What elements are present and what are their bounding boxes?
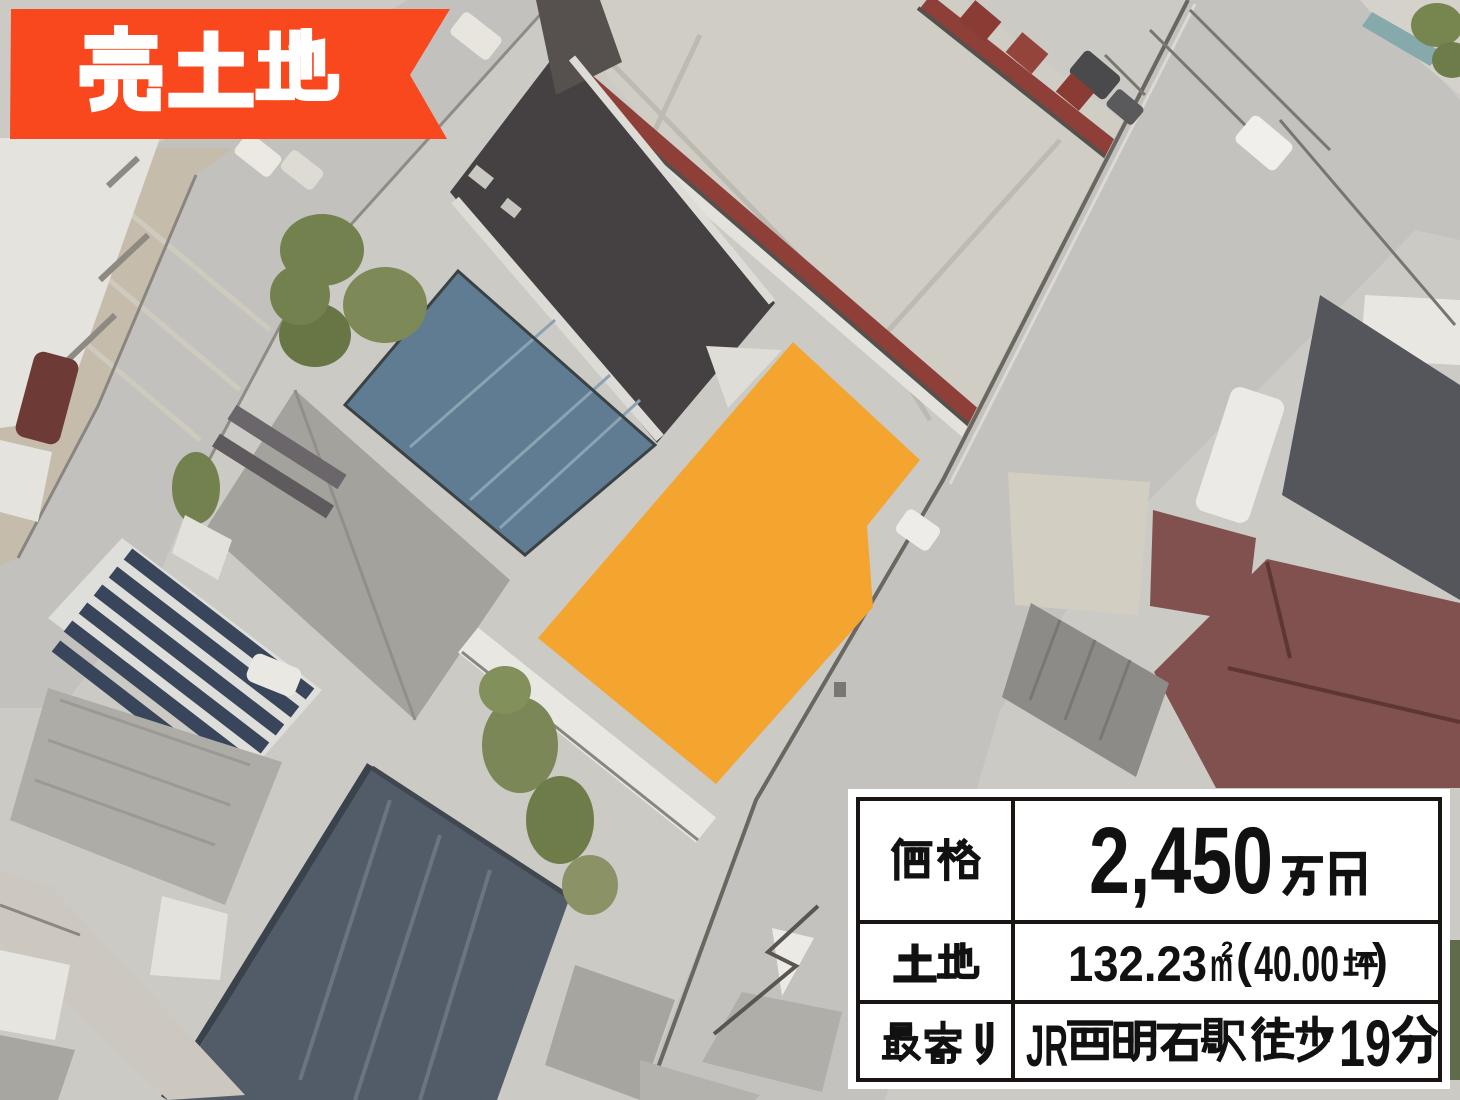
svg-text:): ) xyxy=(1372,935,1388,988)
svg-text:19: 19 xyxy=(1339,1006,1391,1080)
svg-text:40.00: 40.00 xyxy=(1254,936,1339,992)
svg-text:2,450: 2,450 xyxy=(1089,808,1273,914)
svg-text:(: ( xyxy=(1236,935,1252,988)
svg-text:JR: JR xyxy=(1026,1014,1068,1079)
svg-text:132.23: 132.23 xyxy=(1068,936,1207,992)
svg-text:2: 2 xyxy=(1221,937,1233,962)
